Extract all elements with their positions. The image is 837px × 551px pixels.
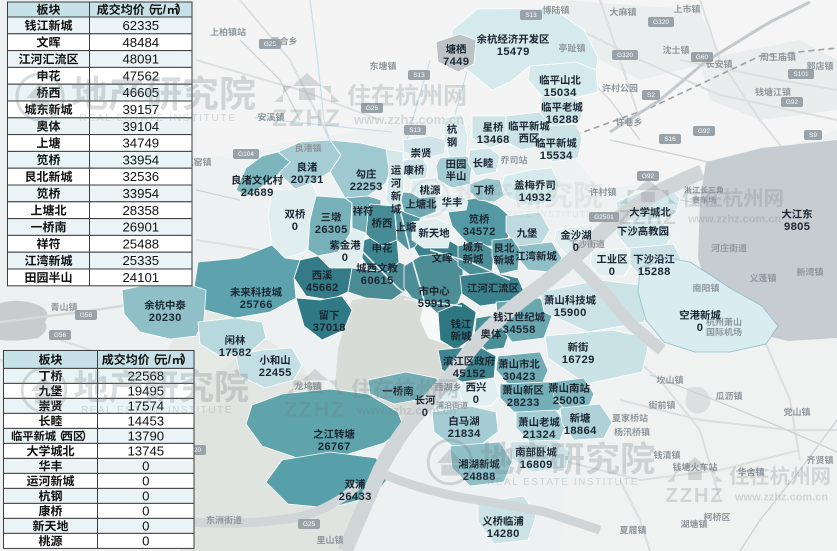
svg-text:15288: 15288 — [638, 266, 671, 278]
svg-text:32536: 32536 — [122, 169, 159, 184]
svg-text:13790: 13790 — [127, 429, 164, 444]
svg-text:45662: 45662 — [306, 282, 339, 294]
svg-text:0: 0 — [573, 242, 579, 254]
svg-text:13745: 13745 — [127, 444, 164, 459]
svg-text:0: 0 — [473, 394, 479, 406]
svg-text:0: 0 — [142, 504, 149, 519]
svg-text:13468: 13468 — [477, 134, 510, 146]
svg-text:0: 0 — [342, 252, 348, 264]
svg-text:25766: 25766 — [240, 299, 272, 311]
svg-text:www.zzhz.com.cn: www.zzhz.com.cn — [353, 112, 464, 127]
svg-text:16288: 16288 — [546, 114, 579, 126]
svg-text:S13: S13 — [409, 127, 421, 134]
svg-text:G92: G92 — [698, 128, 711, 135]
svg-text:0: 0 — [142, 534, 149, 549]
svg-text:S101: S101 — [793, 71, 809, 78]
svg-text:25335: 25335 — [122, 253, 159, 268]
svg-text:0: 0 — [142, 519, 149, 534]
svg-text:15534: 15534 — [540, 150, 573, 162]
svg-text:G56: G56 — [80, 312, 93, 319]
svg-text:S9: S9 — [809, 132, 817, 139]
svg-text:48484: 48484 — [122, 35, 159, 50]
svg-text:26433: 26433 — [339, 491, 372, 503]
svg-text:60615: 60615 — [361, 275, 394, 287]
svg-text:25003: 25003 — [553, 395, 586, 407]
svg-text:25488: 25488 — [122, 236, 159, 251]
svg-text:17582: 17582 — [219, 347, 252, 359]
svg-text:15034: 15034 — [544, 87, 577, 99]
svg-text:26305: 26305 — [315, 224, 348, 236]
svg-text:26767: 26767 — [318, 441, 351, 453]
svg-text:22253: 22253 — [350, 181, 383, 193]
svg-text:15900: 15900 — [554, 307, 587, 319]
svg-text:G92: G92 — [786, 99, 799, 106]
svg-text:7449: 7449 — [443, 56, 469, 68]
svg-text:48091: 48091 — [122, 52, 159, 67]
svg-text:S13: S13 — [413, 72, 425, 79]
svg-text:G92: G92 — [642, 173, 655, 180]
svg-text:G320: G320 — [653, 19, 669, 26]
svg-text:26901: 26901 — [122, 220, 159, 235]
svg-text:ZZHZ: ZZHZ — [619, 207, 678, 229]
svg-text:0: 0 — [142, 489, 149, 504]
svg-text:www.zzhz.com.cn: www.zzhz.com.cn — [734, 491, 828, 503]
svg-text:S16: S16 — [664, 136, 676, 143]
svg-text:18864: 18864 — [564, 425, 597, 437]
svg-text:0: 0 — [292, 221, 298, 233]
svg-text:34572: 34572 — [463, 226, 496, 238]
svg-text:28233: 28233 — [507, 397, 540, 409]
svg-text:REAL ESTATE INSTITUTE: REAL ESTATE INSTITUTE — [487, 477, 639, 488]
svg-text:33954: 33954 — [122, 186, 159, 201]
svg-text:30423: 30423 — [503, 371, 536, 383]
svg-text:34749: 34749 — [122, 136, 159, 151]
svg-text:21324: 21324 — [523, 429, 556, 441]
svg-text:24101: 24101 — [122, 270, 159, 285]
svg-text:28358: 28358 — [122, 203, 159, 218]
svg-text:G25: G25 — [303, 521, 316, 528]
svg-text:34558: 34558 — [503, 324, 536, 336]
svg-text:REAL ESTATE INSTITUTE: REAL ESTATE INSTITUTE — [81, 405, 233, 416]
svg-text:9805: 9805 — [784, 221, 810, 233]
svg-text:0: 0 — [142, 459, 149, 474]
svg-text:22455: 22455 — [259, 367, 292, 379]
svg-text:REAL ESTATE INSTITUTE: REAL ESTATE INSTITUTE — [461, 209, 593, 219]
svg-text:20731: 20731 — [291, 174, 324, 186]
svg-text:G2501: G2501 — [594, 214, 614, 221]
svg-text:www.zzhz.com.cn: www.zzhz.com.cn — [356, 405, 456, 418]
svg-text:0: 0 — [609, 266, 615, 278]
svg-text:ZZHZ: ZZHZ — [284, 396, 346, 421]
svg-text:15479: 15479 — [497, 46, 530, 58]
svg-text:ZZHZ: ZZHZ — [272, 105, 341, 132]
svg-text:24689: 24689 — [241, 187, 273, 199]
svg-text:33954: 33954 — [122, 152, 159, 167]
svg-text:0: 0 — [142, 474, 149, 489]
svg-text:45152: 45152 — [453, 368, 486, 380]
svg-text:16729: 16729 — [562, 354, 595, 366]
svg-text:16809: 16809 — [520, 459, 553, 471]
svg-text:ZZHZ: ZZHZ — [666, 485, 725, 507]
svg-text:REAL ESTATE INSTITUTE: REAL ESTATE INSTITUTE — [79, 112, 237, 124]
svg-text:G320: G320 — [617, 52, 633, 59]
svg-text:0: 0 — [697, 322, 703, 334]
svg-text:S13: S13 — [525, 12, 537, 19]
svg-text:62335: 62335 — [122, 18, 159, 33]
svg-text:37018: 37018 — [313, 322, 346, 334]
svg-text:20230: 20230 — [149, 312, 182, 324]
svg-text:G60: G60 — [696, 54, 709, 61]
svg-text:S2: S2 — [647, 92, 655, 99]
svg-text:www.zzhz.com.cn: www.zzhz.com.cn — [687, 213, 781, 225]
svg-text:59913: 59913 — [418, 298, 451, 310]
svg-text:14280: 14280 — [487, 528, 520, 540]
svg-text:G56: G56 — [54, 332, 67, 339]
svg-text:G104: G104 — [238, 151, 254, 158]
svg-text:21834: 21834 — [448, 428, 481, 440]
